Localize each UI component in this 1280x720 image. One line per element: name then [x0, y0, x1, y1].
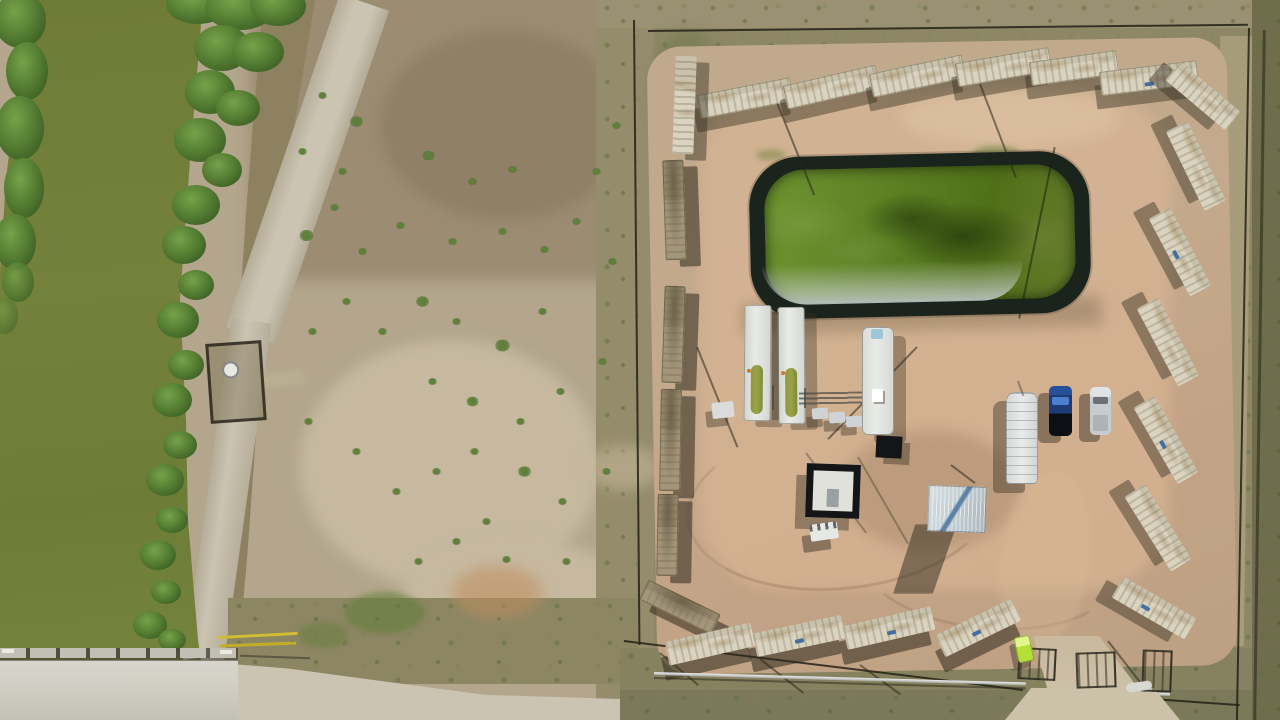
truck-bed — [1093, 415, 1108, 431]
container-label — [972, 629, 982, 637]
equipment-skid — [777, 307, 805, 424]
windshield — [1093, 397, 1108, 404]
container-label — [795, 638, 805, 644]
pickup-truck-silver — [1090, 387, 1111, 435]
well-pad-compound — [0, 0, 1280, 720]
equipment-skid — [743, 305, 771, 421]
trailer-vent — [872, 389, 883, 402]
small-tank — [829, 411, 846, 423]
shipping-container — [659, 389, 682, 491]
trailer-rear-unit — [875, 435, 902, 458]
small-tank — [812, 407, 829, 419]
semi-trailer — [862, 327, 894, 435]
feeder-pipe — [804, 388, 806, 408]
pond-silver-liner-edge — [760, 248, 1023, 306]
wellhead-cellar — [805, 463, 861, 519]
manifold-pipes — [799, 391, 867, 404]
pickup-truck-blue — [1049, 386, 1072, 436]
container-label — [1145, 81, 1154, 86]
container-label — [887, 630, 897, 636]
windshield — [1052, 397, 1069, 405]
retention-pond — [748, 150, 1092, 320]
aerial-photo — [0, 0, 1280, 720]
shipping-container — [672, 56, 696, 155]
shipping-container — [661, 286, 685, 384]
utility-trailer — [1006, 392, 1038, 484]
gate-panel — [1075, 651, 1116, 688]
container-label — [1159, 440, 1167, 450]
corrugated-shelter — [927, 485, 987, 533]
outside-bottom-scrub — [620, 690, 1280, 720]
cellar-equipment — [826, 489, 839, 507]
small-unit — [711, 401, 735, 419]
pad-light-top — [900, 88, 1120, 148]
fence-left — [633, 20, 640, 645]
trailer-front-cap — [871, 329, 883, 339]
shipping-container — [662, 160, 686, 261]
green-tank — [785, 368, 797, 417]
shipping-container — [656, 494, 678, 576]
entrance-road-lower — [1005, 688, 1180, 720]
green-tank — [751, 365, 763, 414]
small-tank — [846, 415, 863, 427]
container-label — [1141, 604, 1151, 612]
feeder-pipe — [772, 385, 774, 410]
container-label — [1172, 250, 1180, 260]
tank-cap — [747, 369, 751, 373]
